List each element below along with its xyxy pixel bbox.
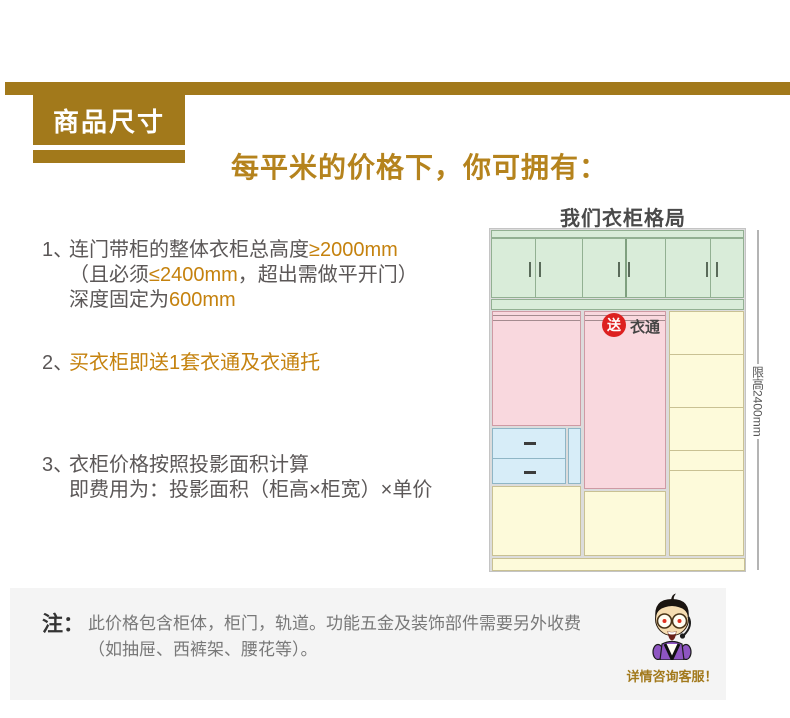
- feature-text-block: 买衣柜即送1套衣通及衣通托: [69, 351, 320, 376]
- hanging-area-left: [492, 311, 581, 426]
- cabinet-door-seam: [535, 239, 536, 297]
- shelf-divider: [670, 470, 743, 471]
- cabinet-door-seam: [625, 239, 627, 297]
- door-handle-icon: [706, 262, 708, 277]
- customer-service-caption[interactable]: 详情咨询客服！: [622, 666, 722, 685]
- hanging-area-middle: 送 衣通: [584, 311, 666, 489]
- customer-service-mascot-icon[interactable]: [645, 592, 699, 660]
- gift-badge-label: 衣通: [630, 316, 660, 337]
- feature-line: 买衣柜即送1套衣通及衣通托: [69, 351, 320, 376]
- customer-service-link[interactable]: 详情咨询客服！: [622, 592, 722, 685]
- base-plinth: [492, 558, 745, 571]
- feature-line: 深度固定为600mm: [69, 288, 418, 313]
- top-accent-bar: [5, 82, 790, 95]
- feature-highlight: 600mm: [169, 289, 236, 311]
- diagram-title: 我们衣柜格局: [489, 202, 757, 231]
- cabinet-door-seam: [582, 239, 583, 297]
- feature-text-block: 连门带柜的整体衣柜总高度≥2000mm （且必须≤2400mm，超出需做平开门）…: [69, 238, 418, 313]
- door-handle-icon: [618, 262, 620, 277]
- note-line: 此价格包含柜体，柜门，轨道。功能五金及装饰部件需要另外收费: [88, 611, 581, 637]
- feature-item-3: 3、 衣柜价格按照投影面积计算 即费用为：投影面积（柜高×柜宽）×单价: [42, 453, 432, 503]
- wardrobe-diagram: 送 衣通: [489, 228, 746, 572]
- gift-badge: 送: [602, 313, 626, 337]
- height-dimension: 限高2400mm: [750, 230, 766, 570]
- cabinet-top-panel: [491, 230, 744, 238]
- height-limit-label: 限高2400mm: [750, 366, 767, 437]
- door-handle-icon: [628, 262, 630, 277]
- section-badge-underbar: [33, 150, 185, 163]
- cabinet-door-seam: [710, 239, 711, 297]
- cabinet-divider-panel: [491, 299, 744, 310]
- shelf-divider: [670, 354, 743, 355]
- drawer-handle-icon: [524, 471, 536, 474]
- section-badge: 商品尺寸: [33, 95, 185, 145]
- overhead-cabinet: [491, 238, 744, 298]
- section-badge-label: 商品尺寸: [53, 102, 165, 139]
- feature-item-1: 1、 连门带柜的整体衣柜总高度≥2000mm （且必须≤2400mm，超出需做平…: [42, 238, 418, 313]
- feature-item-2: 2、 买衣柜即送1套衣通及衣通托: [42, 351, 320, 376]
- dimension-line: [757, 439, 759, 570]
- door-handle-icon: [716, 262, 718, 277]
- note-prefix: 注：: [42, 608, 84, 638]
- note-body: 此价格包含柜体，柜门，轨道。功能五金及装饰部件需要另外收费 （如抽屉、西裤架、腰…: [88, 611, 581, 663]
- door-handle-icon: [539, 262, 541, 277]
- shelf-divider: [670, 407, 743, 408]
- drawer-side-panel: [568, 428, 581, 484]
- clothes-rail: [493, 315, 580, 316]
- drawer-unit: [492, 428, 566, 484]
- cabinet-door-seam: [665, 239, 666, 297]
- feature-text: 连门带柜的整体衣柜总高度: [69, 239, 309, 261]
- feature-text: （且必须: [69, 264, 149, 286]
- note-line: （如抽屉、西裤架、腰花等）。: [88, 637, 581, 663]
- feature-highlight: ≤2400mm: [149, 264, 238, 286]
- feature-number: 1、: [42, 238, 69, 313]
- feature-line: （且必须≤2400mm，超出需做平开门）: [69, 263, 418, 288]
- feature-text-block: 衣柜价格按照投影面积计算 即费用为：投影面积（柜高×柜宽）×单价: [69, 453, 432, 503]
- drawer-handle-icon: [524, 442, 536, 445]
- feature-highlight: 买衣柜即送1套衣通及衣通托: [69, 352, 320, 374]
- feature-line: 衣柜价格按照投影面积计算: [69, 453, 432, 478]
- feature-line: 即费用为：投影面积（柜高×柜宽）×单价: [69, 478, 432, 503]
- feature-number: 3、: [42, 453, 69, 503]
- feature-number: 2、: [42, 351, 69, 376]
- feature-highlight: ≥2000mm: [309, 239, 398, 261]
- feature-text: 深度固定为: [69, 289, 169, 311]
- feature-text: ，超出需做平开门）: [238, 264, 418, 286]
- drawer-divider: [493, 458, 565, 459]
- door-handle-icon: [529, 262, 531, 277]
- shelf-divider: [670, 450, 743, 451]
- clothes-rail: [493, 320, 580, 321]
- dimension-line: [757, 230, 759, 364]
- shelf-area-left: [492, 486, 581, 556]
- note-box: 注： 此价格包含柜体，柜门，轨道。功能五金及装饰部件需要另外收费 （如抽屉、西裤…: [10, 588, 726, 700]
- shelf-area-middle: [584, 491, 666, 556]
- page-title: 每平米的价格下，你可拥有：: [231, 146, 608, 186]
- feature-line: 连门带柜的整体衣柜总高度≥2000mm: [69, 238, 418, 263]
- shelf-column-right: [669, 311, 744, 556]
